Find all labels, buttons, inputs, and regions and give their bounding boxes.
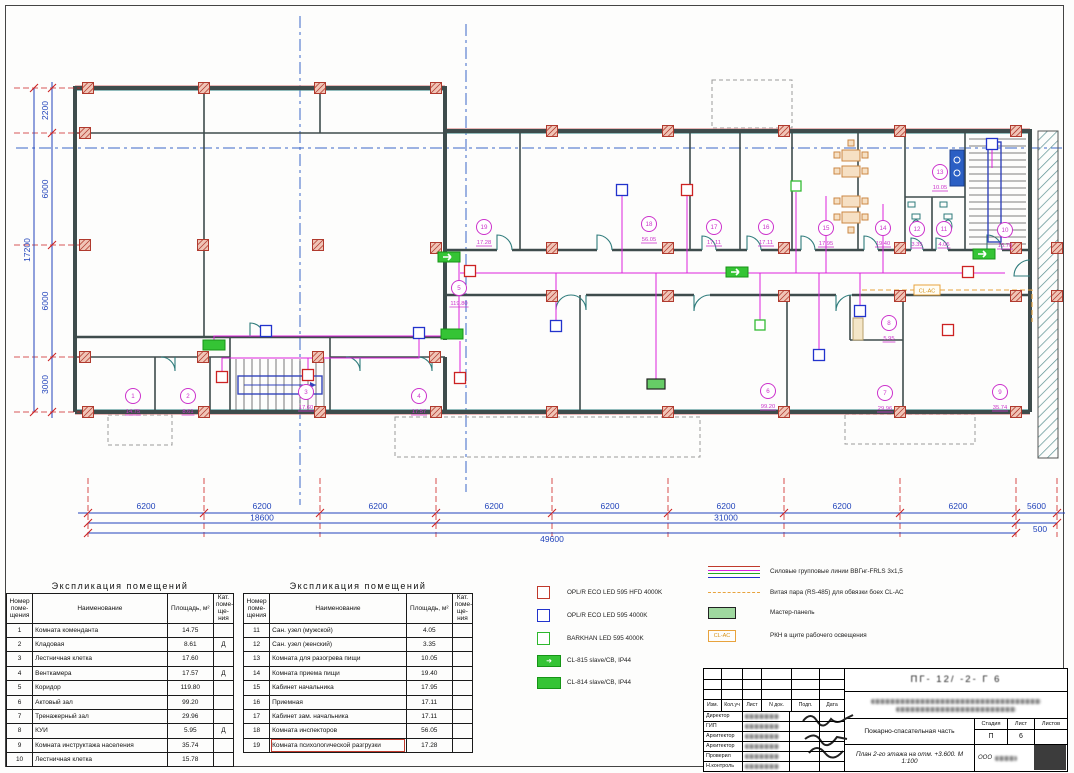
led-hfd-icon xyxy=(455,373,466,384)
led-icon xyxy=(987,139,998,150)
signature-cell xyxy=(789,711,819,721)
porch-outlines xyxy=(108,80,975,457)
table-row: 13Комната для разогрева пищи10.05 xyxy=(244,652,473,666)
column-marker xyxy=(315,83,326,94)
sheet-value: 6 xyxy=(1007,729,1034,744)
redacted-name xyxy=(745,734,779,739)
explication-table-left: Экспликация помещений Номер поме-щения Н… xyxy=(6,581,234,767)
table-row: 5Коридор119.80 xyxy=(7,681,234,695)
column-marker xyxy=(547,407,558,418)
redacted-name xyxy=(745,764,779,769)
signature-cell xyxy=(789,721,819,731)
column-marker xyxy=(547,291,558,302)
dim-label: 18600 xyxy=(250,513,274,523)
room-number: 16 xyxy=(763,224,770,231)
column-marker xyxy=(198,352,209,363)
room-number: 3 xyxy=(304,389,308,396)
room-bubble: 935.74 xyxy=(992,385,1008,412)
room-number: 9 xyxy=(998,389,1002,396)
dim-label: 6200 xyxy=(717,501,736,511)
column-marker xyxy=(430,352,441,363)
table-cell: 11 xyxy=(244,623,270,637)
table-row: 4Венткамера17.57Д xyxy=(7,666,234,680)
legend-item: OPL/R ECO LED 595 HFD 4000K xyxy=(537,586,705,599)
table-cell: 17.28 xyxy=(406,738,452,752)
room-bubble: 1517.95 xyxy=(818,221,834,248)
led-hfd-icon xyxy=(217,372,228,383)
dim-label: 6000 xyxy=(40,291,50,310)
table-cell: 29.96 xyxy=(167,709,213,723)
table-cell: 4 xyxy=(7,666,33,680)
section-name-cell: Пожарно-спасательная часть xyxy=(844,718,974,744)
col-header-number: Номер поме-щения xyxy=(7,594,33,624)
column-marker xyxy=(313,352,324,363)
table-title: Экспликация помещений xyxy=(243,581,473,591)
table-cell: 14.75 xyxy=(167,623,213,637)
table-cell: 17 xyxy=(244,709,270,723)
room-bubble: 114.05 xyxy=(937,222,952,249)
dim-label: 6200 xyxy=(369,501,388,511)
role-label: Н.контроль xyxy=(704,761,742,771)
dim-label: 6200 xyxy=(137,501,156,511)
legend-item: ▬CL-814 slave/СВ, IP44 xyxy=(537,677,705,689)
table-cell: 56.05 xyxy=(406,724,452,738)
room-name-cell: КУИ xyxy=(33,724,168,738)
table-cell: 14 xyxy=(244,666,270,680)
fixture-square-icon xyxy=(537,609,550,622)
table-cell xyxy=(452,738,472,752)
signature-cell xyxy=(789,741,819,751)
legend-item: OPL/R ECO LED 595 4000K xyxy=(537,609,705,622)
dim-label: 6000 xyxy=(40,179,50,198)
table-cell: Д xyxy=(213,724,233,738)
logo-redacted-box xyxy=(1034,745,1066,770)
table-cell: 17.57 xyxy=(167,666,213,680)
title-block: ПГ- 12/ -2- Г 6 Пожарно-спасательная час… xyxy=(703,668,1068,772)
table-cell xyxy=(213,652,233,666)
table-cell: Д xyxy=(213,637,233,651)
table-cell xyxy=(452,666,472,680)
table-cell: Д xyxy=(213,666,233,680)
room-name-cell: Венткамера xyxy=(33,666,168,680)
room-number: 11 xyxy=(941,226,948,233)
table-cell xyxy=(213,753,233,767)
room-name-cell: Кабинет зам. начальника xyxy=(270,709,407,723)
legend-item: Мастер-панель xyxy=(708,607,926,619)
room-area: 5.95 xyxy=(883,336,894,342)
name-cell xyxy=(742,761,789,771)
table-cell: 5 xyxy=(7,681,33,695)
table-cell xyxy=(213,695,233,709)
revision-header-cell: Подп. xyxy=(791,699,819,711)
led-icon xyxy=(855,306,866,317)
table-row: 2Кладовая8.61Д xyxy=(7,637,234,651)
col-header-cat: Кат. поме-ще-ния xyxy=(452,594,472,624)
date-cell xyxy=(819,721,844,731)
revision-header-cell: Изм. xyxy=(704,699,721,711)
room-number: 18 xyxy=(646,221,653,228)
room-area: 119.80 xyxy=(450,301,467,307)
date-cell xyxy=(819,761,844,771)
room-number: 2 xyxy=(186,393,190,400)
room-area: 99.20 xyxy=(761,404,776,410)
table-cell xyxy=(213,709,233,723)
redacted-name xyxy=(745,714,779,719)
master-panel-icon xyxy=(647,379,665,389)
column-marker xyxy=(83,407,94,418)
table-cell: 35.74 xyxy=(167,738,213,752)
table-cell: 1 xyxy=(7,623,33,637)
room-bubble: 699.20 xyxy=(760,384,776,411)
redacted-name xyxy=(745,754,779,759)
legend-label: Витая пара (RS-485) для обвязки боех CL-… xyxy=(770,589,904,597)
revision-empty-cell xyxy=(761,689,791,699)
table-cell xyxy=(213,681,233,695)
table-cell: 8.61 xyxy=(167,637,213,651)
role-label: Архитектор xyxy=(704,741,742,751)
table-row: 7Тренажерный зал29.96 xyxy=(7,709,234,723)
table-cell xyxy=(452,637,472,651)
room-area: 17.11 xyxy=(707,240,721,246)
legend-label: CL-815 slave/СВ, IP44 xyxy=(567,657,631,665)
barkhan-icon xyxy=(791,181,801,191)
table-cell: 10 xyxy=(7,753,33,767)
col-header-number: Номер поме-щения xyxy=(244,594,270,624)
table-cell: 5.95 xyxy=(167,724,213,738)
date-cell xyxy=(819,731,844,741)
legend-label: OPL/R ECO LED 595 4000K xyxy=(567,612,648,620)
table-row: 16Приемная17.11 xyxy=(244,695,473,709)
role-label: Проверил xyxy=(704,751,742,761)
column-marker xyxy=(431,407,442,418)
sheet-header: Лист xyxy=(1007,718,1034,729)
led-hfd-icon xyxy=(465,266,476,277)
dim-label: 3000 xyxy=(40,375,50,394)
signature-cell xyxy=(789,731,819,741)
role-label: ГИП xyxy=(704,721,742,731)
revision-empty-cell xyxy=(721,679,742,689)
column-marker xyxy=(199,407,210,418)
table-cell: 3.35 xyxy=(406,637,452,651)
room-area: 17.11 xyxy=(759,240,773,246)
room-area: 35.74 xyxy=(993,405,1008,411)
legend-label: CL-814 slave/СВ, IP44 xyxy=(567,679,631,687)
room-area: 19.40 xyxy=(876,241,891,247)
exit-sign-arrow-icon: ➜ xyxy=(537,655,561,667)
table-cell: 2 xyxy=(7,637,33,651)
room-bubble: 114.75 xyxy=(125,389,141,416)
room-bubble: 417.57 xyxy=(411,389,427,416)
column-marker xyxy=(895,407,906,418)
table-cell: 7 xyxy=(7,709,33,723)
legend-item: CL-АСРКН в щите рабочего освещения xyxy=(708,630,926,642)
room-name-cell: Лестничная клетка xyxy=(33,753,168,767)
room-bubble: 729.96 xyxy=(877,386,893,413)
legend-label: BARKHAN LED 595 4000K xyxy=(567,635,644,643)
room-area: 8.61 xyxy=(182,409,193,415)
fixture-square-icon xyxy=(537,586,550,599)
floor-plan: CL-АС 114.7528.61317.60417.575119.80699.… xyxy=(0,0,1074,578)
revision-empty-cell xyxy=(742,669,761,679)
door-arcs xyxy=(161,235,1030,371)
column-marker xyxy=(663,243,674,254)
revision-empty-cell xyxy=(742,679,761,689)
room-name-cell: Приемная xyxy=(270,695,407,709)
room-number: 8 xyxy=(887,320,891,327)
date-cell xyxy=(819,751,844,761)
table-row: 12Сан. узел (женский)3.35 xyxy=(244,637,473,651)
column-marker xyxy=(198,240,209,251)
table-row: 8КУИ5.95Д xyxy=(7,724,234,738)
column-marker xyxy=(199,83,210,94)
room-number: 13 xyxy=(937,169,944,176)
dim-label: 500 xyxy=(1033,524,1047,534)
dimension-chains: 6200620062006200620062006200620056001860… xyxy=(14,82,1065,544)
table-cell: 9 xyxy=(7,738,33,752)
table-row: 3Лестничная клетка17.60 xyxy=(7,652,234,666)
table-cell xyxy=(452,724,472,738)
wiring-lines xyxy=(214,150,1005,380)
room-number: 15 xyxy=(823,225,830,232)
room-name-cell: Кладовая xyxy=(33,637,168,651)
column-marker xyxy=(547,126,558,137)
sheets-value xyxy=(1034,729,1067,744)
legend-label: OPL/R ECO LED 595 HFD 4000K xyxy=(567,589,662,597)
revision-empty-cell xyxy=(704,669,721,679)
led-icon xyxy=(551,321,562,332)
dim-label: 49600 xyxy=(540,534,564,544)
furniture-room15 xyxy=(834,140,868,233)
name-cell xyxy=(742,751,789,761)
column-marker xyxy=(315,407,326,418)
sheet-name-cell: План 2-го этажа на отм. +3.600. М 1:100 xyxy=(844,744,974,771)
revision-empty-cell xyxy=(704,689,721,699)
room-area: 14.75 xyxy=(126,409,141,415)
room-area: 17.28 xyxy=(477,240,492,246)
col-header-cat: Кат. поме-ще-ния xyxy=(213,594,233,624)
role-label: Директор xyxy=(704,711,742,721)
barkhan-icon xyxy=(755,320,765,330)
legend-fixtures: OPL/R ECO LED 595 HFD 4000KOPL/R ECO LED… xyxy=(537,586,705,699)
room-name-cell: Комната инструктажа населения xyxy=(33,738,168,752)
drawing-sheet: { "sheet": { "plan_caption": "План 2-го … xyxy=(0,0,1074,773)
room-name-cell: Комната инспекторов xyxy=(270,724,407,738)
table-title: Экспликация помещений xyxy=(6,581,234,591)
room-name-cell: Комната для разогрева пищи xyxy=(270,652,407,666)
room-number: 1 xyxy=(131,393,135,400)
fixture-square-icon xyxy=(537,632,550,645)
legend-label: Мастер-панель xyxy=(770,609,815,617)
table-cell: 19 xyxy=(244,738,270,752)
table-cell xyxy=(452,681,472,695)
table-cell xyxy=(213,738,233,752)
revision-empty-cell xyxy=(761,669,791,679)
room-bubble: 1419.40 xyxy=(875,221,891,248)
column-marker xyxy=(1052,291,1063,302)
revision-empty-cell xyxy=(791,689,819,699)
revision-empty-cell xyxy=(819,679,844,689)
led-hfd-icon xyxy=(303,370,314,381)
table-cell xyxy=(452,652,472,666)
room-bubble: 1310.05 xyxy=(932,165,948,192)
revision-empty-cell xyxy=(721,669,742,679)
revision-empty-cell xyxy=(819,669,844,679)
exit-sign-solid-icon: ▬ xyxy=(537,677,561,689)
redacted-project-line xyxy=(896,707,1016,712)
table-cell: 4.05 xyxy=(406,623,452,637)
room-area: 56.05 xyxy=(642,237,657,243)
exit-solid-icon xyxy=(203,340,225,350)
led-icon xyxy=(814,350,825,361)
svg-text:CL-АС: CL-АС xyxy=(919,289,935,295)
led-icon xyxy=(617,185,628,196)
table-row: 10Лестничная клетка15.78 xyxy=(7,753,234,767)
revision-empty-cell xyxy=(742,689,761,699)
room-bubble: 1015.78 xyxy=(997,223,1013,250)
table-cell: 17.60 xyxy=(167,652,213,666)
table-cell: 99.20 xyxy=(167,695,213,709)
column-marker xyxy=(779,291,790,302)
room-name-cell: Тренажерный зал xyxy=(33,709,168,723)
room-area: 17.95 xyxy=(819,241,834,247)
staircase-room3 xyxy=(236,359,324,410)
room-area: 3.35 xyxy=(911,242,922,248)
room-name-cell: Кабинет начальника xyxy=(270,681,407,695)
exit-arrow-icon xyxy=(973,249,995,259)
table-cell: 10.05 xyxy=(406,652,452,666)
room-bubble: 1917.28 xyxy=(476,220,492,247)
stage-header: Стадия xyxy=(974,718,1007,729)
column-marker xyxy=(1011,291,1022,302)
dim-label: 6200 xyxy=(949,501,968,511)
table-row: 15Кабинет начальника17.95 xyxy=(244,681,473,695)
table-cell xyxy=(452,709,472,723)
room-name-cell: Комната коменданта xyxy=(33,623,168,637)
table-cell: 3 xyxy=(7,652,33,666)
table-row: 18Комната инспекторов56.05 xyxy=(244,724,473,738)
column-marker xyxy=(663,291,674,302)
room-number: 12 xyxy=(914,226,921,233)
table-cell: 119.80 xyxy=(167,681,213,695)
legend-item: ➜CL-815 slave/СВ, IP44 xyxy=(537,655,705,667)
redacted-project-line xyxy=(871,699,1041,704)
dim-label: 6200 xyxy=(601,501,620,511)
col-header-name: Наименование xyxy=(270,594,407,624)
revision-empty-cell xyxy=(721,689,742,699)
legend-item: BARKHAN LED 595 4000K xyxy=(537,632,705,645)
sheet-name: План 2-го этажа на отм. +3.600. М 1:100 xyxy=(854,751,966,765)
legend-label: Силовые групповые линии ВВГнг-FRLS 3х1,5 xyxy=(770,568,903,576)
room-number: 6 xyxy=(766,388,770,395)
dim-label: 6200 xyxy=(485,501,504,511)
led-icon xyxy=(261,326,272,337)
table-cell xyxy=(452,695,472,709)
column-marker xyxy=(779,407,790,418)
table-row: 11Сан. узел (мужской)4.05 xyxy=(244,623,473,637)
name-cell xyxy=(742,711,789,721)
room-bubble: 85.95 xyxy=(882,316,897,343)
master-panel-icon xyxy=(708,607,736,619)
cl-ac-box-icon: CL-АС xyxy=(708,630,736,642)
table-row: 6Актовый зал99.20 xyxy=(7,695,234,709)
group-lines-icon xyxy=(708,566,760,578)
signature-cell xyxy=(789,751,819,761)
legend-item: Силовые групповые линии ВВГнг-FRLS 3х1,5 xyxy=(708,566,926,578)
revision-empty-cell xyxy=(791,669,819,679)
table-row: 14Комната приема пищи19.40 xyxy=(244,666,473,680)
dim-label: 6200 xyxy=(253,501,272,511)
date-cell xyxy=(819,711,844,721)
revision-header-cell: Дата xyxy=(819,699,844,711)
column-marker xyxy=(663,407,674,418)
table-cell: 17.11 xyxy=(406,709,452,723)
table-row: 19Комната психологической разгрузки17.28 xyxy=(244,738,473,752)
table-cell: 17.95 xyxy=(406,681,452,695)
name-cell xyxy=(742,721,789,731)
table-cell: 12 xyxy=(244,637,270,651)
room-bubble: 1717.11 xyxy=(706,220,722,247)
document-number-cell: ПГ- 12/ -2- Г 6 xyxy=(844,669,1067,691)
table-row: 1Комната коменданта14.75 xyxy=(7,623,234,637)
led-hfd-icon xyxy=(963,267,974,278)
name-cell xyxy=(742,741,789,751)
twisted-pair-dashed-icon xyxy=(708,592,760,593)
table-row: 17Кабинет зам. начальника17.11 xyxy=(244,709,473,723)
stage-value: П xyxy=(974,729,1007,744)
revision-empty-cell xyxy=(791,679,819,689)
revision-header-cell: Кол.уч xyxy=(721,699,742,711)
room-name-cell: Сан. узел (женский) xyxy=(270,637,407,651)
table-cell: 8 xyxy=(7,724,33,738)
room-name-cell: Актовый зал xyxy=(33,695,168,709)
room-number: 17 xyxy=(711,224,718,231)
room-number: 5 xyxy=(457,285,461,292)
table-cell: 17.11 xyxy=(406,695,452,709)
room-area: 17.57 xyxy=(412,409,427,415)
column-marker xyxy=(895,291,906,302)
room-name-cell: Лестничная клетка xyxy=(33,652,168,666)
dim-label: 2200 xyxy=(40,101,50,120)
col-header-area: Площадь, м² xyxy=(167,594,213,624)
exit-arrow-icon xyxy=(726,267,748,277)
column-marker xyxy=(80,240,91,251)
redacted-name xyxy=(745,724,779,729)
document-number: ПГ- 12/ -2- Г 6 xyxy=(911,675,1002,685)
column-marker xyxy=(895,126,906,137)
table-cell: 6 xyxy=(7,695,33,709)
column-marker xyxy=(1011,126,1022,137)
revision-empty-cell xyxy=(761,679,791,689)
table-row: 9Комната инструктажа населения35.74 xyxy=(7,738,234,752)
legend-item: Витая пара (RS-485) для обвязки боех CL-… xyxy=(708,589,926,597)
legend-label: РКН в щите рабочего освещения xyxy=(770,632,867,640)
column-marker xyxy=(779,126,790,137)
room-area: 4.05 xyxy=(938,242,949,248)
room-number: 14 xyxy=(880,225,887,232)
signature-cell xyxy=(789,761,819,771)
table-cell xyxy=(452,623,472,637)
table-cell: 19.40 xyxy=(406,666,452,680)
table-cell: 13 xyxy=(244,652,270,666)
room-number: 19 xyxy=(481,224,488,231)
col-header-name: Наименование xyxy=(33,594,168,624)
date-cell xyxy=(819,741,844,751)
room-area: 10.05 xyxy=(933,185,948,191)
room-number: 4 xyxy=(417,393,421,400)
room-number: 7 xyxy=(883,390,887,397)
company-prefix: ООО xyxy=(978,755,992,762)
column-marker xyxy=(80,128,91,139)
